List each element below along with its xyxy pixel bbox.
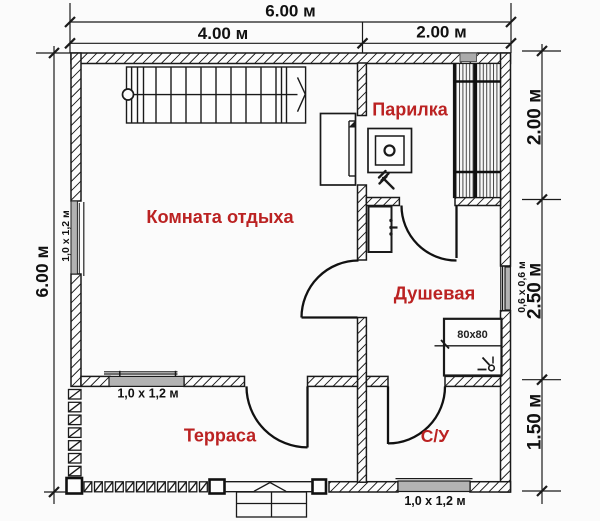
svg-text:Комната отдыха: Комната отдыха — [146, 207, 294, 227]
svg-text:Душевая: Душевая — [394, 283, 476, 304]
svg-text:Парилка: Парилка — [372, 100, 448, 120]
svg-text:2.00 м: 2.00 м — [416, 23, 466, 42]
svg-text:4.00 м: 4.00 м — [198, 24, 248, 43]
svg-text:1.50 м: 1.50 м — [525, 394, 546, 450]
svg-text:80х80: 80х80 — [457, 329, 488, 341]
svg-text:2.00 м: 2.00 м — [525, 89, 546, 145]
svg-text:С/У: С/У — [421, 426, 451, 446]
svg-text:Терраса: Терраса — [184, 426, 257, 446]
svg-text:2.50 м: 2.50 м — [525, 263, 546, 319]
svg-text:1,0 х 1,2 м: 1,0 х 1,2 м — [60, 210, 72, 262]
svg-text:1,0 х 1,2 м: 1,0 х 1,2 м — [117, 387, 178, 401]
svg-text:6.00 м: 6.00 м — [265, 2, 315, 21]
svg-text:6.00 м: 6.00 м — [32, 246, 52, 298]
svg-text:1,0 х 1,2 м: 1,0 х 1,2 м — [404, 494, 465, 508]
